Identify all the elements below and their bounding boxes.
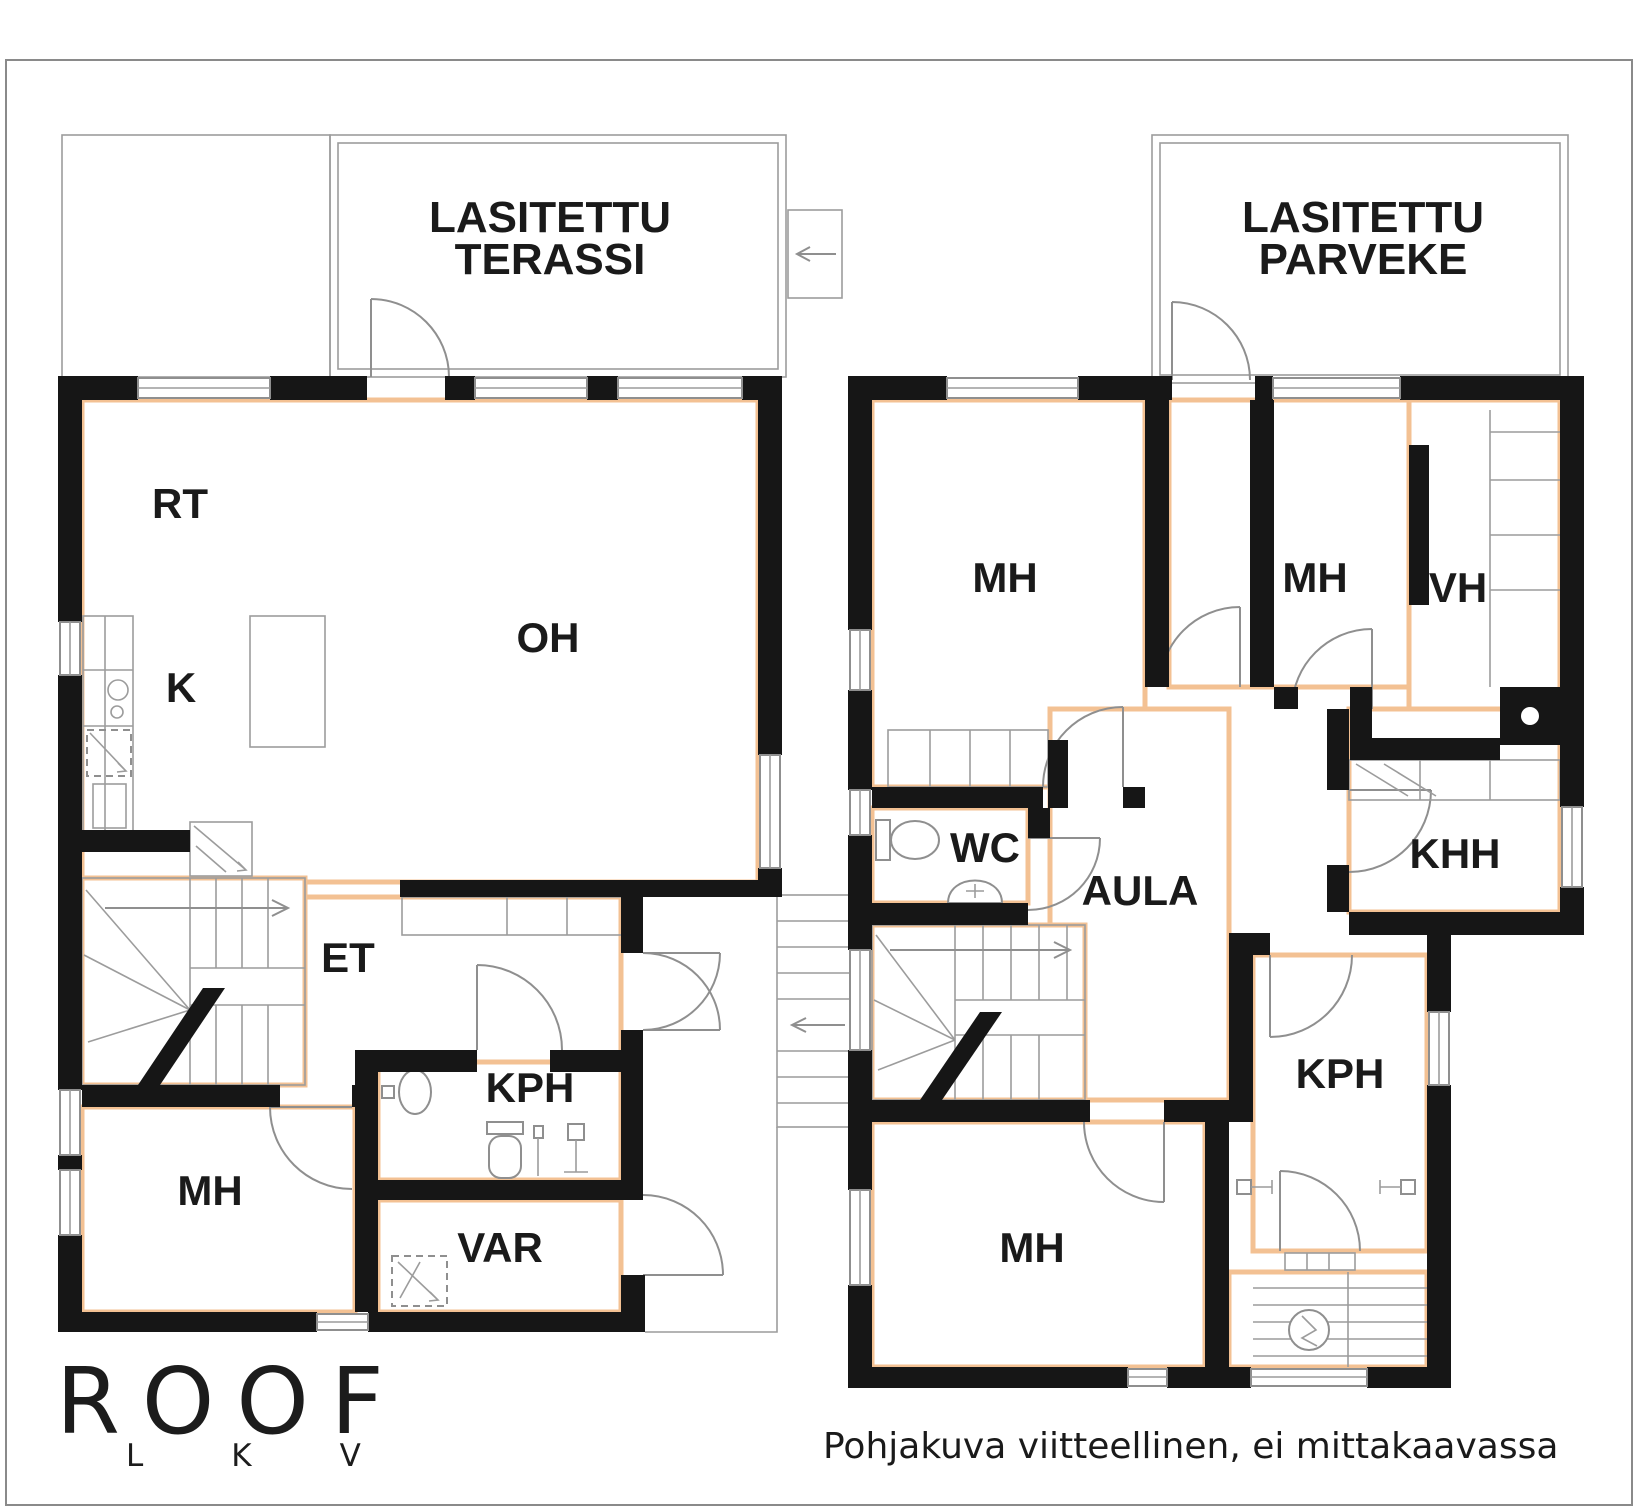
sauna-threshold-icon: [1285, 1253, 1355, 1270]
room-label-mh-upper-right: MH: [1282, 554, 1347, 601]
room-label-khh: KHH: [1410, 830, 1501, 877]
floor-plan-canvas: LASITETTU TERASSI LASITETTU PARVEKE RT K…: [0, 0, 1638, 1511]
room-label-oh: OH: [517, 614, 580, 661]
room-label-et: ET: [321, 934, 375, 981]
room-label-wc: WC: [950, 824, 1020, 871]
room-label-mh-ground: MH: [177, 1167, 242, 1214]
room-label-kph-upper: KPH: [1296, 1050, 1385, 1097]
room-label-mh-upper-left: MH: [972, 554, 1037, 601]
sauna-stove-icon: [1289, 1310, 1329, 1350]
vh-divider-wall: [1409, 445, 1429, 605]
terrace-label-line2: TERASSI: [455, 235, 646, 284]
footer-disclaimer: Pohjakuva viitteellinen, ei mittakaavass…: [823, 1426, 1558, 1467]
room-label-kph-ground: KPH: [486, 1064, 575, 1111]
terrace-entry-arrow-icon: [797, 247, 836, 261]
chimney-flue-icon: [1521, 707, 1539, 725]
exterior-door: [643, 1195, 723, 1275]
room-label-k: K: [166, 664, 196, 711]
room-label-aula: AULA: [1082, 867, 1199, 914]
balcony-label-line2: PARVEKE: [1259, 235, 1468, 284]
room-label-mh-bottom: MH: [999, 1224, 1064, 1271]
room-label-vh: VH: [1429, 564, 1487, 611]
roof-logo: ROOF LKV: [56, 1348, 449, 1474]
ground-floor-terrace: [62, 135, 842, 377]
room-label-rt: RT: [152, 480, 208, 527]
room-label-var: VAR: [457, 1224, 543, 1271]
balcony-door: [1172, 302, 1250, 380]
entry-french-doors: [643, 953, 720, 1030]
logo-letters: LKV: [126, 1438, 449, 1474]
